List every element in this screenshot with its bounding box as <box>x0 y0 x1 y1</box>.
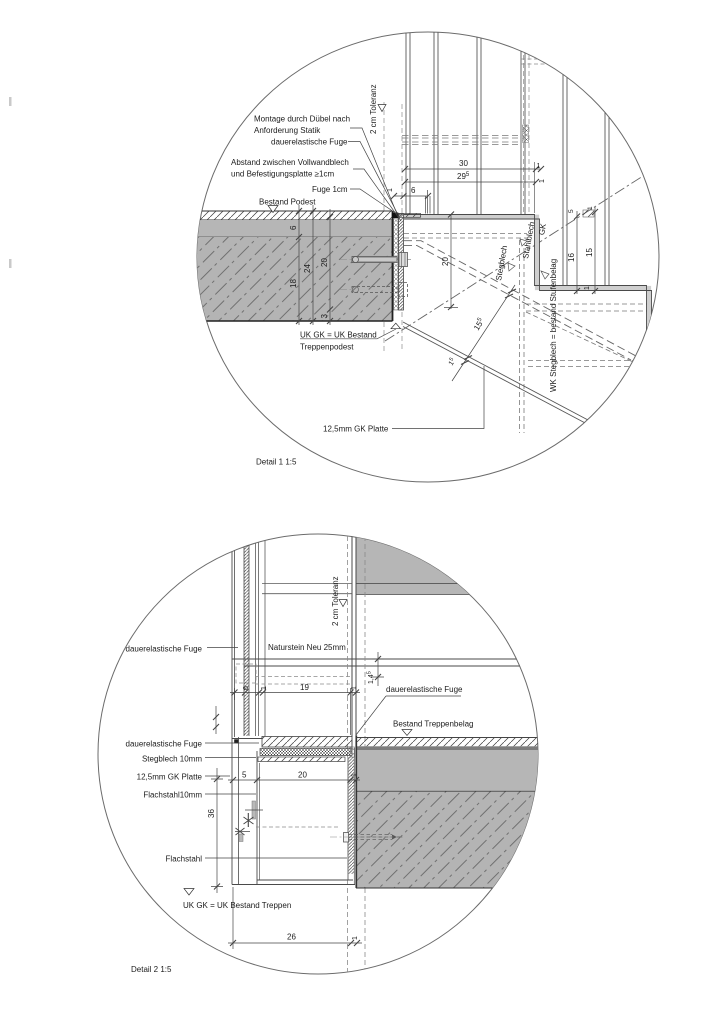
svg-text:Detail 2 1:5: Detail 2 1:5 <box>131 965 172 974</box>
svg-text:dauerelastische Fuge: dauerelastische Fuge <box>126 645 203 654</box>
svg-text:36: 36 <box>207 809 216 818</box>
svg-text:WK Stegblech = bestand Stufenb: WK Stegblech = bestand Stufenbelag <box>549 259 558 392</box>
svg-text:1: 1 <box>537 163 541 170</box>
svg-text:1: 1 <box>352 936 359 940</box>
svg-text:5: 5 <box>568 209 575 213</box>
svg-text:Treppenpodest: Treppenpodest <box>300 343 354 352</box>
svg-text:20: 20 <box>320 258 329 267</box>
svg-text:UK GK = UK Bestand: UK GK = UK Bestand <box>300 331 377 340</box>
svg-text:19: 19 <box>300 683 309 692</box>
svg-text:6: 6 <box>243 686 250 690</box>
svg-text:5: 5 <box>242 771 247 780</box>
svg-text:18: 18 <box>289 279 298 288</box>
svg-text:6: 6 <box>411 186 416 195</box>
svg-text:Naturstein Neu 25mm: Naturstein Neu 25mm <box>268 643 346 652</box>
svg-text:6: 6 <box>289 225 298 230</box>
svg-text:und Befestigungsplatte ≥1cm: und Befestigungsplatte ≥1cm <box>231 169 334 178</box>
svg-text:3: 3 <box>320 314 329 319</box>
svg-text:20: 20 <box>441 257 450 266</box>
svg-text:Anforderung Statik: Anforderung Statik <box>254 126 321 135</box>
svg-text:dauerelastische Fuge: dauerelastische Fuge <box>271 138 348 147</box>
svg-text:Detail 1 1:5: Detail 1 1:5 <box>256 458 297 467</box>
svg-text:2 cm Toleranz: 2 cm Toleranz <box>369 84 378 134</box>
svg-text:12,5mm GK Platte: 12,5mm GK Platte <box>137 773 203 782</box>
svg-text:1: 1 <box>587 206 594 210</box>
svg-text:Fuge 1cm: Fuge 1cm <box>312 185 348 194</box>
svg-text:Abstand zwischen Vollwandblech: Abstand zwischen Vollwandblech <box>231 158 349 167</box>
svg-text:16: 16 <box>567 253 576 262</box>
svg-text:Bestand Treppenbelag: Bestand Treppenbelag <box>393 720 474 729</box>
svg-text:UK GK = UK Bestand Treppen: UK GK = UK Bestand Treppen <box>183 901 291 910</box>
svg-text:Flachstahl: Flachstahl <box>166 855 203 864</box>
svg-text:dauerelastische Fuge: dauerelastische Fuge <box>126 740 203 749</box>
svg-text:24: 24 <box>303 264 312 273</box>
svg-text:1: 1 <box>539 179 546 183</box>
svg-text:dauerelastische Fuge: dauerelastische Fuge <box>386 685 463 694</box>
svg-text:26: 26 <box>287 933 296 942</box>
svg-text:Stegblech 10mm: Stegblech 10mm <box>142 755 202 764</box>
svg-text:1: 1 <box>351 686 358 690</box>
svg-text:12,5mm GK Platte: 12,5mm GK Platte <box>323 425 389 434</box>
svg-text:20: 20 <box>298 771 307 780</box>
svg-text:1: 1 <box>584 286 591 290</box>
svg-text:Montage durch Dübel nach: Montage durch Dübel nach <box>254 115 350 124</box>
svg-text:30: 30 <box>459 159 468 168</box>
svg-text:1: 1 <box>351 773 358 777</box>
svg-text:Flachstahl10mm: Flachstahl10mm <box>143 791 202 800</box>
svg-text:15: 15 <box>585 248 594 257</box>
svg-text:1: 1 <box>261 686 268 690</box>
svg-text:2 cm Toleranz: 2 cm Toleranz <box>331 576 340 626</box>
